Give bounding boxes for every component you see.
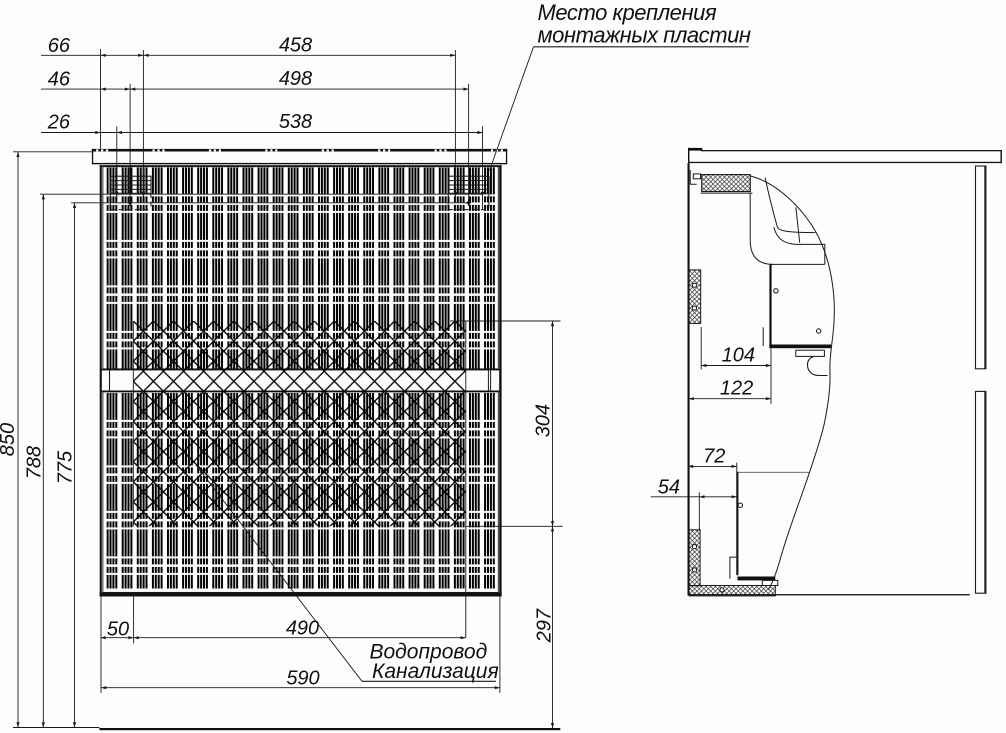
svg-text:Канализация: Канализация xyxy=(372,660,499,683)
svg-text:304: 304 xyxy=(533,404,555,437)
svg-text:122: 122 xyxy=(720,378,753,400)
svg-text:850: 850 xyxy=(0,423,19,456)
svg-text:66: 66 xyxy=(48,35,71,57)
svg-text:788: 788 xyxy=(24,446,46,479)
svg-text:54: 54 xyxy=(658,477,680,499)
svg-text:297: 297 xyxy=(534,608,556,643)
svg-text:104: 104 xyxy=(722,345,755,367)
svg-text:490: 490 xyxy=(286,618,319,640)
svg-text:775: 775 xyxy=(55,450,77,484)
svg-text:590: 590 xyxy=(286,668,319,690)
svg-text:монтажных пластин: монтажных пластин xyxy=(538,23,751,48)
svg-text:72: 72 xyxy=(703,446,725,468)
svg-text:26: 26 xyxy=(47,112,71,134)
svg-text:50: 50 xyxy=(107,619,129,641)
svg-text:458: 458 xyxy=(279,35,312,57)
svg-text:Место крепления: Место крепления xyxy=(538,0,717,25)
svg-text:498: 498 xyxy=(279,68,312,90)
svg-text:46: 46 xyxy=(48,69,71,91)
svg-text:538: 538 xyxy=(279,111,312,133)
